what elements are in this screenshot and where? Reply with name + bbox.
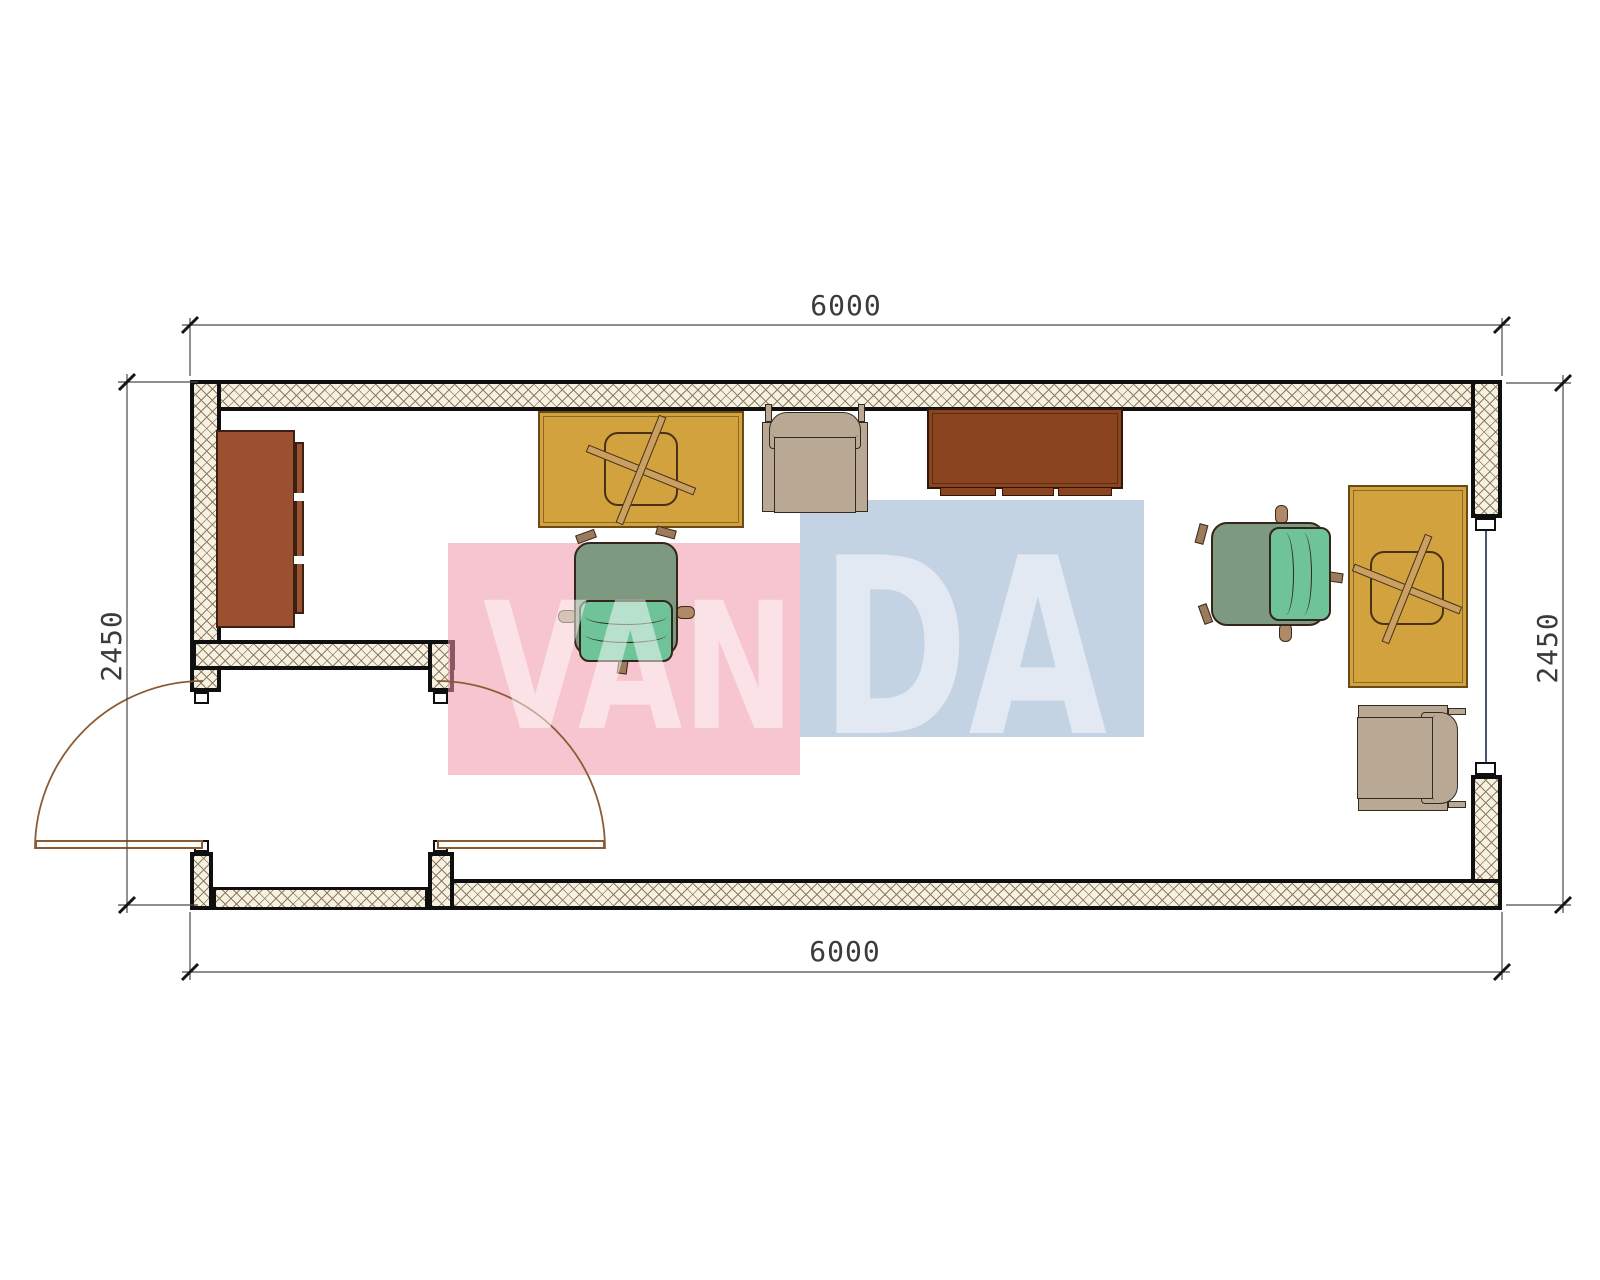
armchair-seat	[1357, 717, 1433, 799]
wall-right-upper	[1471, 380, 1502, 518]
armchair-right	[1356, 705, 1466, 811]
cabinet	[216, 430, 295, 628]
door-swing-arc-left	[35, 681, 203, 849]
armchair-leg	[1448, 708, 1466, 715]
window-jamb	[1475, 762, 1496, 775]
door-leaf-right	[437, 840, 605, 849]
armchair-leg	[1448, 801, 1466, 808]
wall-bottom-right-post	[428, 852, 454, 910]
door-jamb	[433, 692, 448, 704]
cabinet-handle	[294, 493, 305, 501]
chair-armrest	[676, 606, 695, 619]
office-chair-middle	[562, 524, 692, 676]
office-chair-right	[1193, 508, 1345, 638]
chair-seat	[579, 600, 673, 662]
tucked-chair-symbol	[604, 432, 678, 506]
armchair-seat	[774, 437, 856, 513]
dim-width-top: 6000	[786, 292, 906, 320]
wall-bottom-left-post	[190, 852, 213, 910]
wall-bottom-main	[428, 879, 1502, 910]
desk-right	[1348, 485, 1468, 688]
tucked-chair-symbol	[1370, 551, 1444, 625]
table-foot	[1002, 487, 1054, 496]
chair-caster	[1195, 523, 1209, 545]
sideboard-table	[927, 408, 1123, 489]
desk-top	[538, 411, 744, 528]
floorplan-canvas: 6000 6000 2450 2450 VAN DA	[0, 0, 1600, 1280]
table-foot	[1058, 487, 1112, 496]
watermark-blue-rect	[800, 500, 1144, 737]
cabinet-handle	[294, 556, 305, 564]
cabinet-door-edge	[295, 442, 304, 614]
table-edge-line	[932, 413, 1118, 484]
window-jamb	[1475, 518, 1496, 531]
vestibule-interior-wall	[192, 640, 455, 670]
chair-caster	[655, 526, 677, 540]
dim-height-right: 2450	[1534, 588, 1562, 708]
armchair-leg	[858, 404, 865, 422]
table-foot	[940, 487, 996, 496]
door-jamb	[194, 692, 209, 704]
door-threshold	[213, 887, 428, 910]
dim-height-left: 2450	[98, 586, 126, 706]
door-leaf-left	[35, 840, 203, 849]
armchair-top	[762, 404, 868, 514]
dim-width-bottom: 6000	[785, 938, 905, 966]
chair-seat	[1269, 527, 1331, 621]
